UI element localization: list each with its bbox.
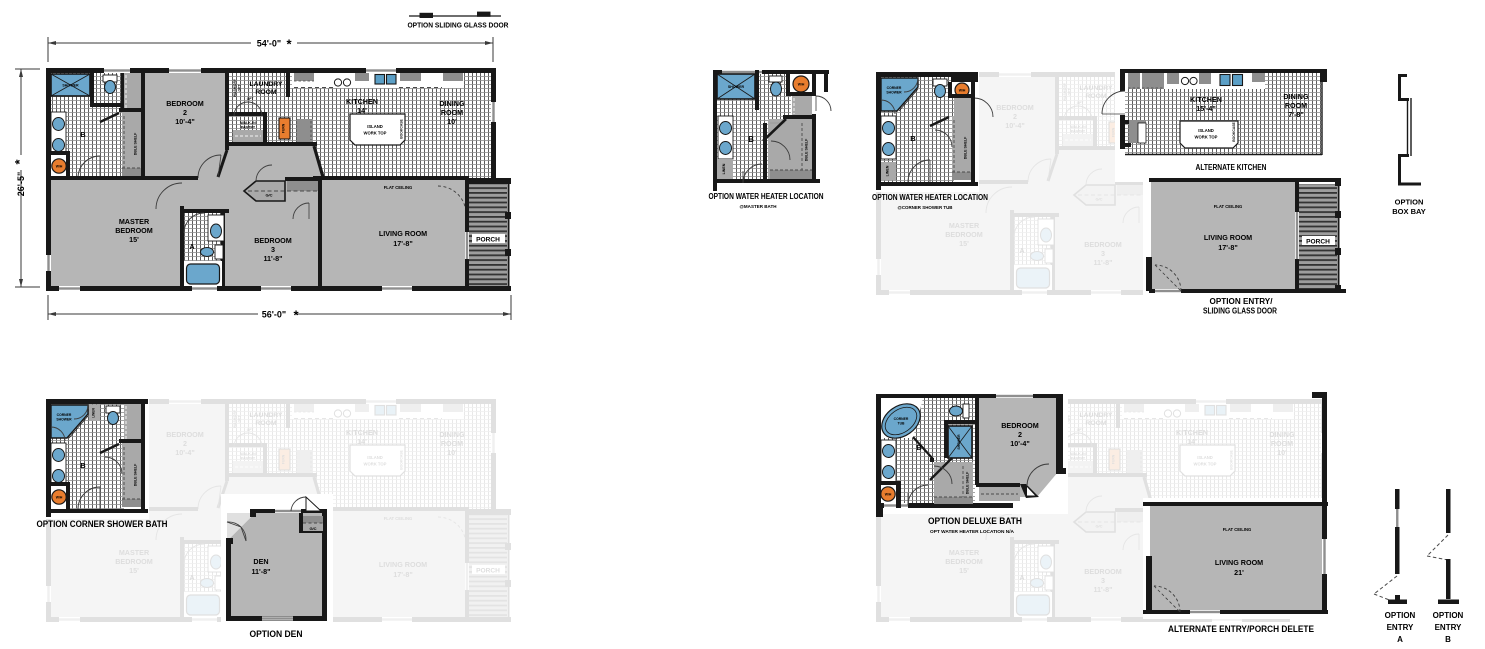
svg-text:21': 21' [1234,568,1244,577]
svg-text:OPT WATER HEATER LOCATION: OPT WATER HEATER LOCATION N/A [930,529,1015,534]
svg-text:17'-8": 17'-8" [1218,243,1238,252]
svg-text:15'-4": 15'-4" [1196,104,1216,113]
svg-text:SLIDING GLASS DOOR: SLIDING GLASS DOOR [1203,307,1277,316]
svg-text:DINING: DINING [439,99,465,108]
svg-text:10': 10' [447,117,457,126]
svg-text:BEDROOM: BEDROOM [1001,421,1039,430]
svg-text:DINING: DINING [1283,92,1309,101]
svg-text:26'-5": 26'-5" [16,172,26,196]
svg-text:ALTERNATE KITCHEN: ALTERNATE KITCHEN [1196,163,1267,172]
svg-text:W/H: W/H [56,496,63,500]
svg-text:11'-8": 11'-8" [263,254,282,263]
svg-text:W/H: W/H [959,89,966,93]
svg-text:DBLE SHELF: DBLE SHELF [805,138,809,161]
svg-text:OPTION: OPTION [1395,198,1424,207]
svg-text:OPT: OPT [238,84,242,92]
svg-text:DEN: DEN [253,557,268,566]
svg-text:OPTION WATER HEATER LOCATION: OPTION WATER HEATER LOCATION [872,193,988,202]
svg-text:G/C: G/C [309,526,316,531]
svg-text:LIVING ROOM: LIVING ROOM [379,229,427,238]
svg-text:15': 15' [129,235,139,244]
svg-text:TUB: TUB [898,422,906,426]
svg-text:B: B [1445,635,1451,644]
svg-text:CORNER: CORNER [887,86,902,90]
svg-text:WORK TOP: WORK TOP [364,131,387,136]
svg-text:@CORNER SHOWER TUB: @CORNER SHOWER TUB [898,205,954,210]
svg-text:@MASTER BATH: @MASTER BATH [740,204,778,209]
svg-text:OPTION DEN: OPTION DEN [250,629,303,639]
svg-text:SHOWER: SHOWER [957,434,961,450]
svg-text:2: 2 [1018,430,1022,439]
svg-text:LIVING ROOM: LIVING ROOM [1204,233,1252,242]
svg-text:OPTION ENTRY/: OPTION ENTRY/ [1210,297,1274,306]
svg-text:SHOWER: SHOWER [62,83,79,87]
svg-text:OPTION SLIDING GLASS DOOR: OPTION SLIDING GLASS DOOR [408,21,510,30]
svg-text:10'-4": 10'-4" [1010,439,1030,448]
svg-text:A: A [1397,635,1403,644]
svg-text:WALK-IN: WALK-IN [240,121,256,125]
svg-text:2: 2 [183,108,187,117]
svg-text:B: B [80,130,86,139]
svg-text:FLAT CEILING: FLAT CEILING [1223,527,1252,532]
svg-text:W/H: W/H [885,493,892,497]
svg-text:FURN: FURN [282,123,286,133]
svg-text:10'-4": 10'-4" [175,117,195,126]
svg-text:7'-8": 7'-8" [1288,110,1304,119]
svg-text:BEDROOM: BEDROOM [254,236,292,245]
svg-text:ALTERNATE ENTRY/PORCH DELETE: ALTERNATE ENTRY/PORCH DELETE [1168,624,1314,635]
svg-text:SHOWER: SHOWER [728,85,745,89]
svg-text:ISLAND: ISLAND [367,124,383,129]
svg-text:BOOKCASE: BOOKCASE [1232,121,1236,141]
svg-text:BEDROOM: BEDROOM [115,226,153,235]
svg-text:ROOM: ROOM [255,89,276,96]
svg-text:54'-0": 54'-0" [257,39,281,49]
svg-text:OPTION CORNER SHOWER BATH: OPTION CORNER SHOWER BATH [37,519,168,529]
svg-text:OPTION: OPTION [1433,611,1464,620]
svg-text:WASH/DRY: WASH/DRY [233,78,237,97]
svg-text:G/C: G/C [265,193,272,198]
svg-text:CORNER: CORNER [57,413,72,417]
svg-text:DBLE SHELF: DBLE SHELF [134,132,138,155]
svg-text:SHOWER: SHOWER [886,91,902,95]
svg-text:LIVING ROOM: LIVING ROOM [1215,558,1263,567]
svg-text:B: B [748,135,754,144]
svg-text:ROOM: ROOM [1285,101,1307,110]
svg-text:PORCH: PORCH [1306,239,1330,246]
svg-text:LAUNDRY: LAUNDRY [250,81,283,88]
svg-text:B: B [910,134,916,143]
svg-text:BEDROOM: BEDROOM [166,99,204,108]
svg-text:A: A [189,244,194,251]
svg-text:OPTION WATER HEATER LOCATION: OPTION WATER HEATER LOCATION [709,192,824,201]
svg-text:ROOM: ROOM [441,108,463,117]
svg-text:CORNER: CORNER [894,417,909,421]
svg-text:FLAT CEILING: FLAT CEILING [1214,204,1243,209]
svg-text:OPTION: OPTION [1385,611,1416,620]
svg-text:SHOWER: SHOWER [56,418,72,422]
svg-text:FLAT CEILING: FLAT CEILING [384,185,413,190]
svg-text:B: B [80,461,86,470]
svg-text:ENTRY: ENTRY [1387,623,1414,632]
svg-text:DBLE SHELF: DBLE SHELF [134,463,138,486]
svg-text:PANTRY: PANTRY [241,126,256,130]
svg-text:KITCHEN: KITCHEN [1190,95,1222,104]
svg-text:LINEN: LINEN [92,408,96,418]
svg-text:MASTER: MASTER [119,217,150,226]
svg-text:LINEN: LINEN [722,163,726,174]
svg-text:BOOKCASE: BOOKCASE [400,118,404,138]
svg-text:17'-8": 17'-8" [393,239,413,248]
svg-text:DBLE SHELF: DBLE SHELF [966,471,970,494]
svg-text:B: B [916,443,922,452]
svg-text:DBLE SHELF: DBLE SHELF [964,136,968,159]
svg-text:ENTRY: ENTRY [1435,623,1462,632]
svg-text:OPTION DELUXE BATH: OPTION DELUXE BATH [928,516,1022,526]
svg-text:WORK TOP: WORK TOP [1195,135,1218,140]
svg-text:PORCH: PORCH [476,237,500,244]
svg-text:56'-0": 56'-0" [262,310,286,320]
svg-text:W/H: W/H [56,165,63,169]
svg-text:3: 3 [271,245,275,254]
svg-text:OPT: OPT [247,97,254,101]
svg-text:11'-8": 11'-8" [251,567,270,576]
svg-text:BOX BAY: BOX BAY [1392,207,1425,216]
svg-text:LINEN: LINEN [886,165,890,176]
svg-text:KITCHEN: KITCHEN [346,97,378,106]
svg-text:ISLAND: ISLAND [1198,128,1214,133]
svg-text:W/H: W/H [798,83,805,87]
